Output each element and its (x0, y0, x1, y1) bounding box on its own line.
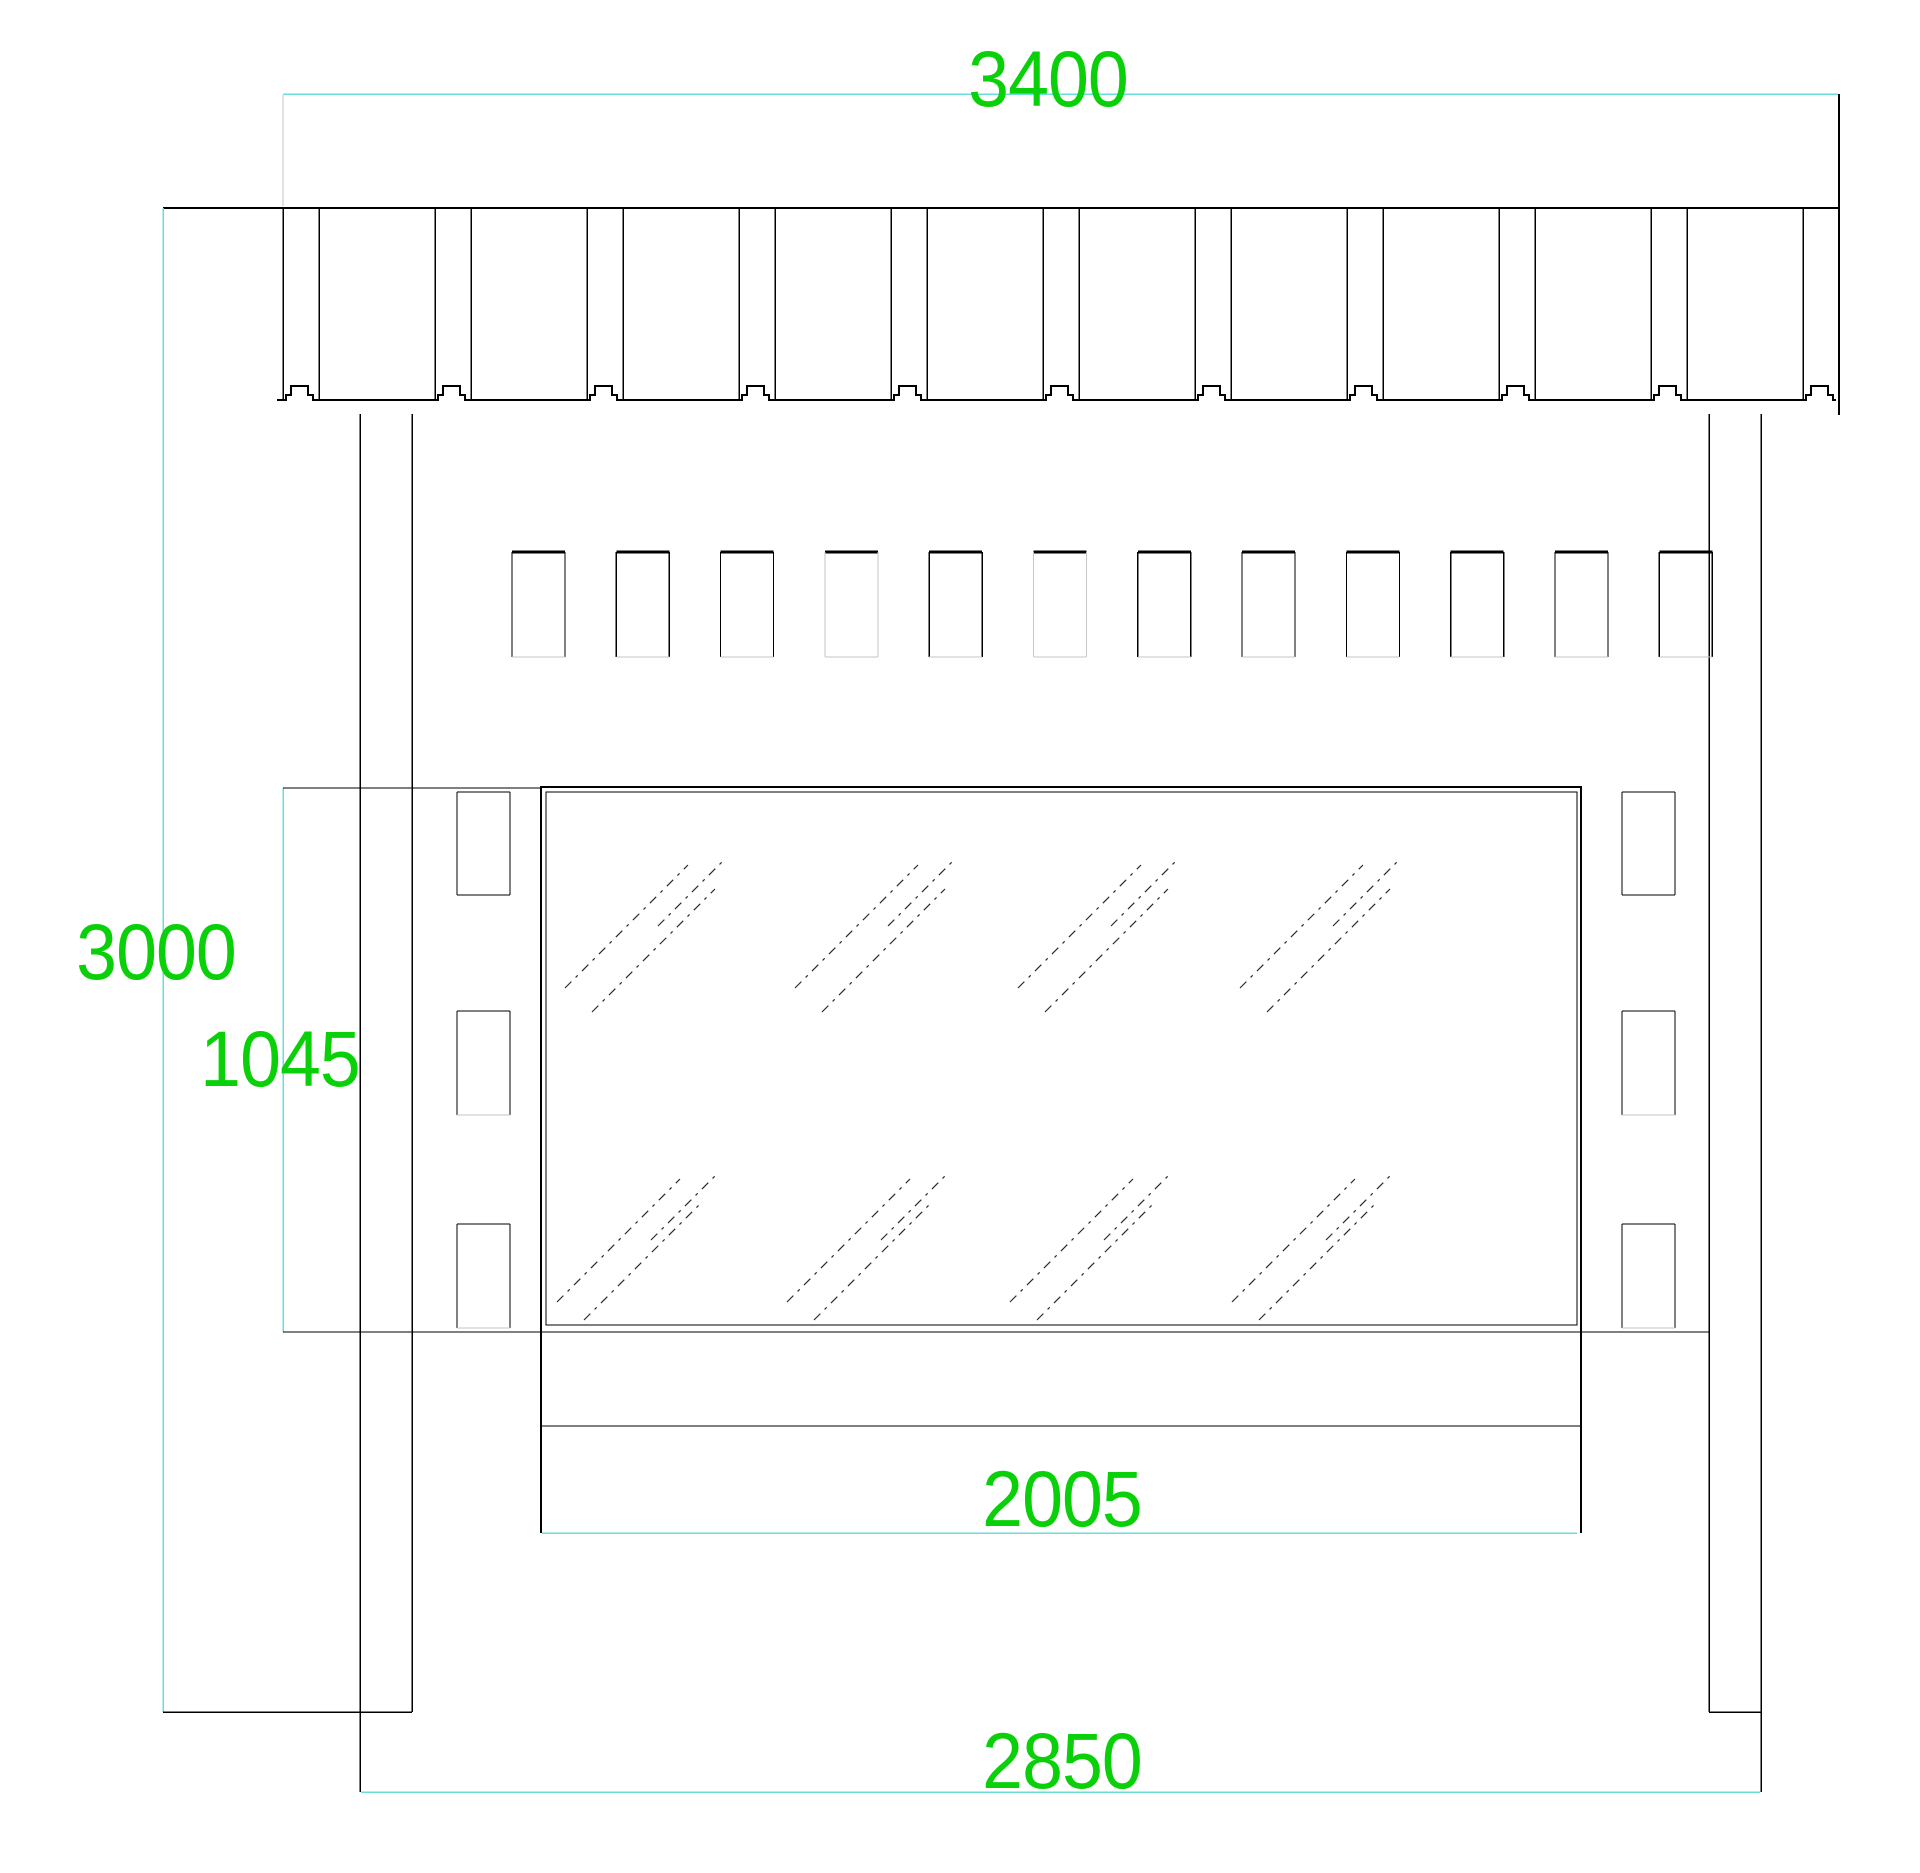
glass-panel (546, 792, 1577, 1325)
glass-hatch-stroke (814, 1203, 931, 1320)
glass-hatch-stroke (822, 889, 945, 1012)
glass-hatch-stroke (881, 1175, 946, 1240)
glass-hatch-stroke (1037, 1203, 1154, 1320)
glass-hatch-stroke (1267, 889, 1390, 1012)
dim-label-2850: 2850 (982, 1721, 1142, 1800)
glass-hatch-stroke (795, 865, 918, 988)
glass-hatch-stroke (592, 889, 715, 1012)
glass-hatch-stroke (565, 865, 688, 988)
glass-hatch-stroke (787, 1179, 910, 1302)
glass-hatch-stroke (1104, 1175, 1169, 1240)
dim-label-3000: 3000 (76, 912, 236, 991)
dim-label-2005: 2005 (982, 1459, 1142, 1538)
dim-label-3400: 3400 (968, 39, 1128, 118)
cad-drawing-page: 34003000104520052850 (0, 0, 1920, 1873)
glass-hatch-stroke (658, 861, 723, 926)
glass-hatch-stroke (1018, 865, 1141, 988)
glass-hatch-stroke (651, 1175, 716, 1240)
drawing-canvas (0, 0, 1920, 1873)
glass-hatch-stroke (584, 1203, 701, 1320)
glass-hatch-stroke (1333, 861, 1398, 926)
glass-hatch-stroke (1010, 1179, 1133, 1302)
glass-hatch-stroke (557, 1179, 680, 1302)
glass-hatch-stroke (1240, 865, 1363, 988)
band-bottom-profile-with-notches (277, 386, 1836, 400)
glass-hatch-stroke (1326, 1175, 1391, 1240)
dim-label-1045: 1045 (200, 1019, 360, 1098)
glass-hatch-stroke (1232, 1179, 1355, 1302)
glass-hatch-stroke (888, 861, 953, 926)
glass-hatch-stroke (1259, 1203, 1376, 1320)
glass-hatch-stroke (1111, 861, 1176, 926)
glass-hatch-stroke (1045, 889, 1168, 1012)
